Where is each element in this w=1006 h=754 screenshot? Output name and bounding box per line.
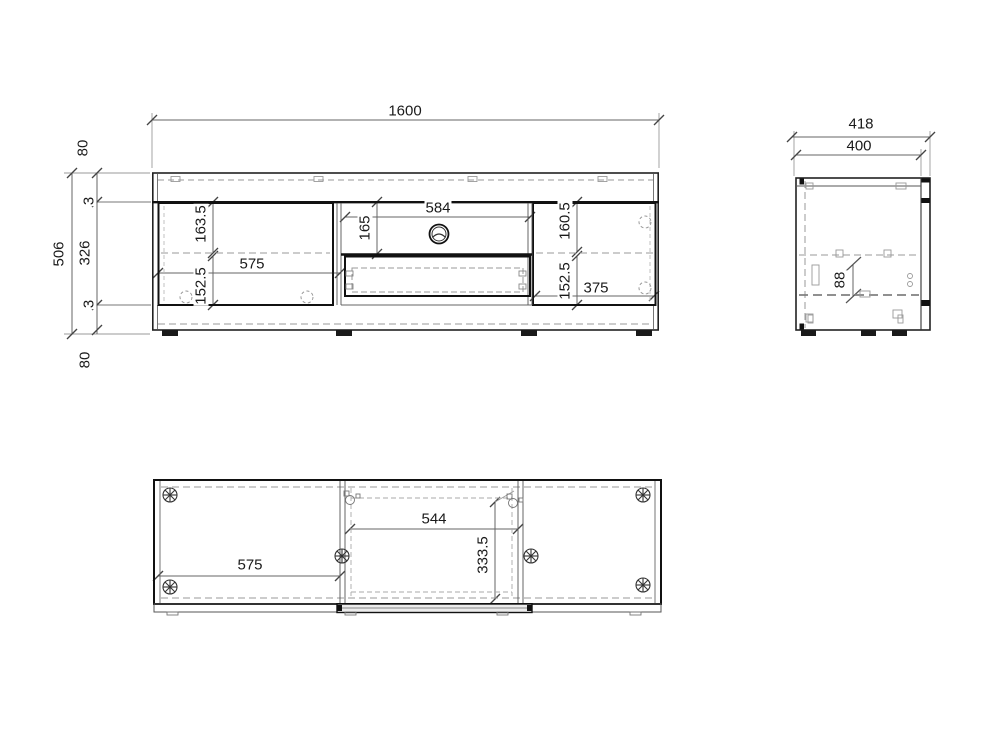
dim-front-right-opening: 375 bbox=[582, 281, 609, 296]
dim-front-bottom-panel: 80 bbox=[78, 351, 93, 370]
side-view-cabinet bbox=[796, 178, 930, 336]
drawer-front bbox=[345, 257, 530, 297]
drawing-linework bbox=[0, 0, 1006, 754]
dim-side-detail-height: 88 bbox=[833, 271, 848, 290]
dim-front-niche-height: 165 bbox=[358, 214, 373, 241]
screw-fitting-icons bbox=[344, 491, 523, 508]
dim-front-top-panel: 80 bbox=[76, 139, 91, 158]
dim-front-niche-width: 584 bbox=[424, 201, 451, 216]
dim-plan-inner-depth: 333.5 bbox=[476, 535, 491, 575]
front-feet bbox=[162, 330, 652, 336]
dim-front-total-width: 1600 bbox=[387, 104, 422, 119]
dim-front-total-height: 506 bbox=[52, 240, 67, 267]
dim-plan-left-opening: 575 bbox=[236, 558, 263, 573]
cam-lock-icons bbox=[163, 488, 650, 594]
technical-drawing-canvas: 1600 506 80 3 326 3 80 163.5 152.5 575 5… bbox=[0, 0, 1006, 754]
cable-grommet-icon bbox=[430, 225, 449, 244]
dim-side-body-depth: 400 bbox=[845, 139, 872, 154]
front-view-cabinet bbox=[152, 173, 659, 336]
left-door-panel bbox=[159, 203, 334, 305]
plan-view-cabinet bbox=[154, 480, 661, 615]
dim-front-bottom-gap: 3 bbox=[82, 299, 97, 309]
side-feet bbox=[801, 330, 907, 336]
dim-front-right-upper: 160.5 bbox=[558, 201, 573, 241]
dim-front-top-gap: 3 bbox=[82, 196, 97, 206]
dim-front-left-lower: 152.5 bbox=[194, 266, 209, 306]
dim-side-total-depth: 418 bbox=[847, 117, 874, 132]
plan-view-dimension-lines bbox=[153, 491, 523, 604]
dim-front-door-section: 326 bbox=[78, 239, 93, 266]
dim-front-right-lower: 152.5 bbox=[558, 261, 573, 301]
dim-plan-niche-width: 544 bbox=[420, 512, 447, 527]
dim-front-left-upper: 163.5 bbox=[194, 204, 209, 244]
dim-front-left-opening: 575 bbox=[238, 257, 265, 272]
side-view-dimension-lines bbox=[787, 131, 935, 303]
